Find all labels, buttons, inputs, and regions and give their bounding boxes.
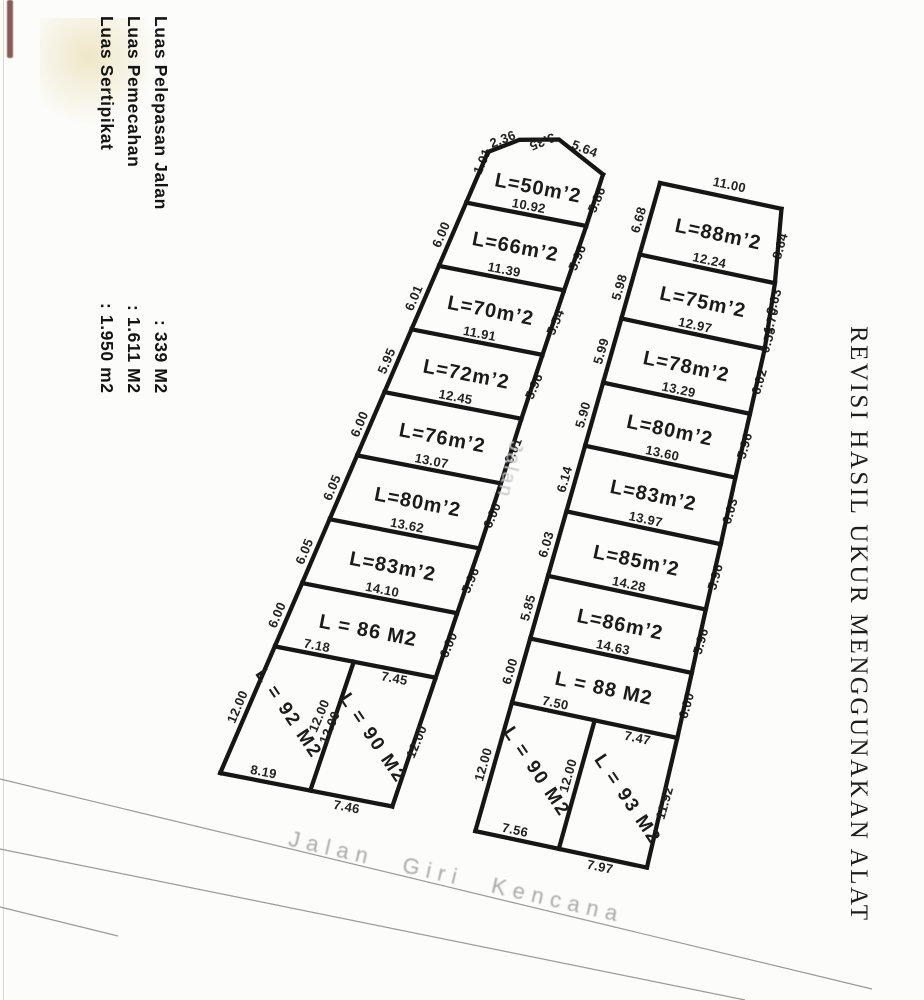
area-label: L = 93 M2 (590, 751, 665, 849)
dimension-label: 12.00 (403, 723, 430, 760)
scanned-survey-page: Luas Sertipikat : 1.950 m2 Luas Pemecaha… (0, 0, 924, 1000)
dimension-label: 5.64 (570, 137, 601, 161)
area-label: L = 86 M2 (317, 611, 419, 652)
area-label: L=75m’2 (658, 283, 748, 323)
road-edge-line (0, 849, 745, 1000)
area-label: L=85m’2 (591, 541, 681, 581)
survey-drawing: 1.012.363.355.64L=50m’210.925.86L=66m’21… (0, 0, 924, 1000)
area-label: L=76m’2 (397, 419, 487, 457)
area-label: L=83m’2 (608, 476, 698, 516)
area-label: L=66m’2 (470, 228, 560, 266)
area-label: L = 90 M2 (335, 689, 410, 787)
area-label: L=83m’2 (348, 548, 438, 586)
dimension-label: 11.92 (653, 785, 677, 821)
area-label: L=80m’2 (625, 411, 715, 451)
dimension-label: 3.35 (527, 130, 557, 154)
area-label: L=78m’2 (641, 347, 731, 387)
area-label: L=88m’2 (673, 215, 763, 255)
area-label: L=80m’2 (373, 483, 463, 521)
area-label: L=86m’2 (575, 605, 665, 645)
road-edge-line (0, 907, 118, 936)
plot-boundary (220, 773, 392, 807)
area-label: L=72m’2 (421, 356, 511, 394)
dimension-label: 11.00 (712, 174, 748, 196)
area-label: L=70m’2 (446, 292, 536, 330)
